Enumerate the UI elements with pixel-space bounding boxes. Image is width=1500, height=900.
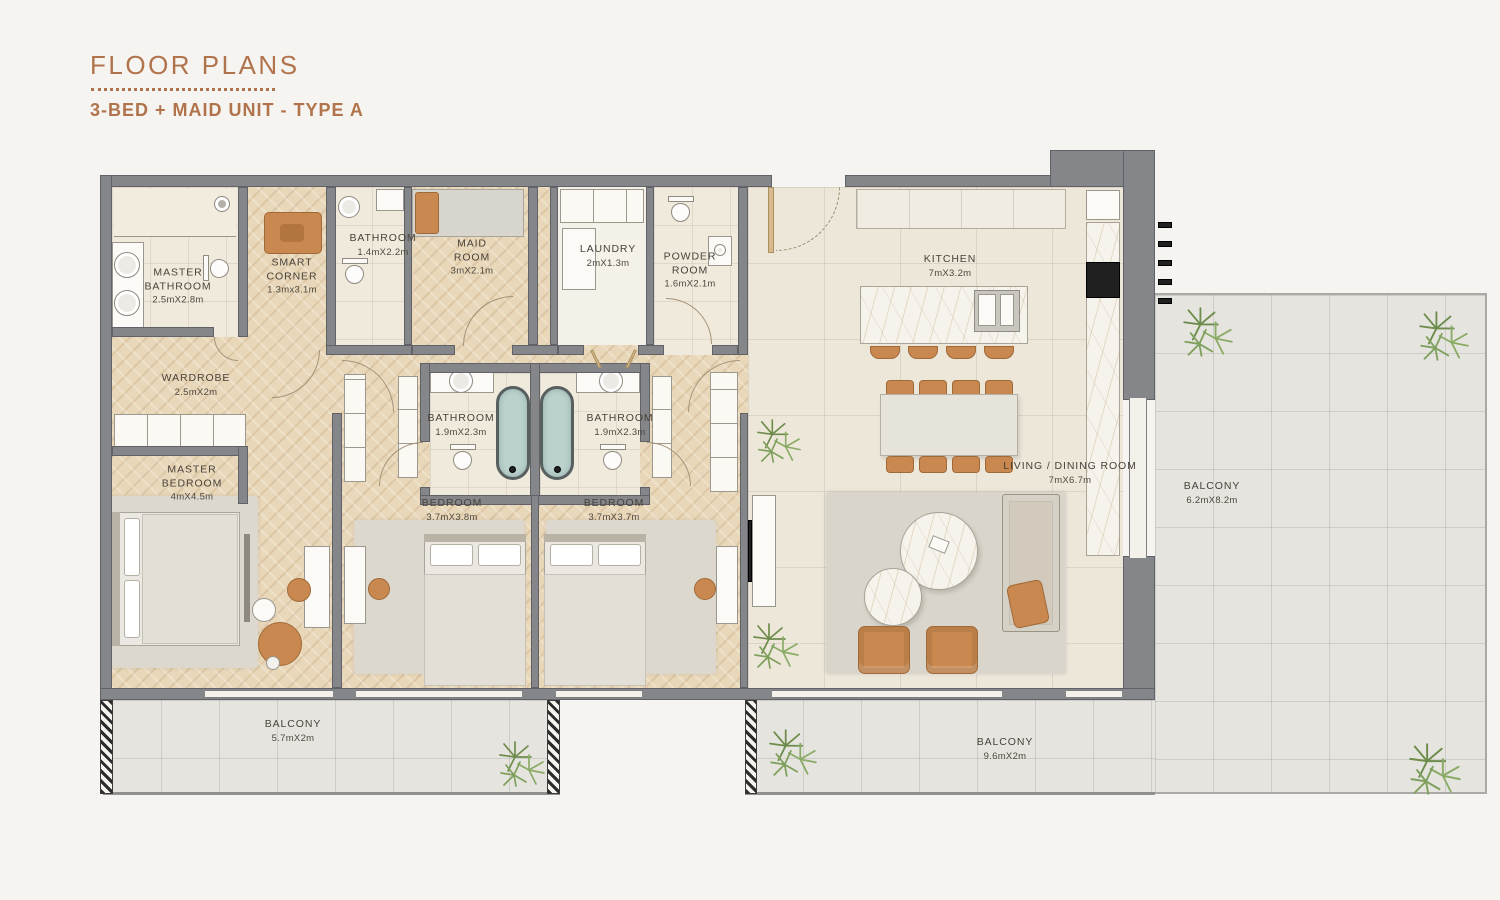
room-name: BATHROOM xyxy=(582,412,658,426)
bar-stool xyxy=(908,346,938,359)
bed-duvet xyxy=(424,574,526,686)
ac-vent xyxy=(1158,241,1172,247)
balcony-left-floor xyxy=(103,700,560,794)
bedroom-2-desk xyxy=(716,546,738,624)
room-dims: 1.4mX2.2m xyxy=(345,247,421,258)
balcony-end-hatch xyxy=(100,700,113,794)
room-dims: 5.7mX2m xyxy=(233,733,353,744)
wall xyxy=(412,345,455,355)
tub-faucet xyxy=(509,466,516,473)
wall xyxy=(112,327,214,337)
room-name: MASTER BEDROOM xyxy=(150,463,234,490)
pillow xyxy=(430,544,473,566)
pillow xyxy=(124,580,140,638)
bed-headboard xyxy=(544,534,646,542)
room-label-bedroom-1: BEDROOM 3.7mX3.8m xyxy=(397,497,507,523)
bed-bench xyxy=(244,534,250,622)
maid-bed-pillow xyxy=(415,192,439,234)
room-label-wardrobe: WARDROBE 2.5mX2m xyxy=(136,372,256,398)
window xyxy=(356,690,522,698)
bed-headboard xyxy=(424,534,526,542)
bedroom-1-desk xyxy=(344,546,366,624)
tv-console xyxy=(752,495,776,607)
ac-vent xyxy=(1158,279,1172,285)
tv xyxy=(748,520,752,582)
room-label-balcony-left: BALCONY 5.7mX2m xyxy=(233,718,353,744)
pillow xyxy=(124,518,140,576)
lounge-chair xyxy=(258,622,302,666)
sink-bowl xyxy=(1000,294,1014,326)
room-name: BALCONY xyxy=(1152,480,1272,494)
bar-stool xyxy=(946,346,976,359)
wall xyxy=(332,413,342,688)
room-dims: 1.9mX2.3m xyxy=(423,427,499,438)
room-label-powder-room: POWDER ROOM 1.6mX2.1m xyxy=(655,250,725,289)
dining-chair xyxy=(919,456,947,473)
room-dims: 3.7mX3.8m xyxy=(397,512,507,523)
dining-table xyxy=(880,394,1018,456)
window xyxy=(205,690,333,698)
shower-head-icon xyxy=(214,196,230,212)
wall xyxy=(238,187,248,337)
floor-plan: MASTER BATHROOM 2.5mX2.8m SMART CORNER 1… xyxy=(0,0,1500,900)
dining-chair xyxy=(886,456,914,473)
room-label-smart-corner: SMART CORNER 1.3mx3.1m xyxy=(257,256,327,295)
wall xyxy=(326,187,336,355)
master-bed-duvet xyxy=(142,514,238,644)
side-table xyxy=(252,598,276,622)
room-dims: 4mX4.5m xyxy=(150,492,234,503)
sink-icon xyxy=(338,196,360,218)
wall xyxy=(404,187,412,345)
pillow xyxy=(598,544,641,566)
room-dims: 3.7mX3.7m xyxy=(559,512,669,523)
wall xyxy=(112,446,246,456)
toilet-icon xyxy=(342,258,368,286)
tub-faucet xyxy=(554,466,561,473)
room-name: LIVING / DINING ROOM xyxy=(960,460,1180,474)
balcony-end-hatch xyxy=(745,700,757,794)
laundry-cabinets xyxy=(560,189,644,223)
room-label-balcony-right: BALCONY 6.2mX8.2m xyxy=(1152,480,1272,506)
window xyxy=(772,690,1002,698)
room-label-living-dining: LIVING / DINING ROOM 7mX6.7m xyxy=(960,460,1180,486)
fridge xyxy=(1086,190,1120,220)
plant-icon xyxy=(768,728,818,778)
pillow xyxy=(550,544,593,566)
room-dims: 7mX6.7m xyxy=(960,475,1180,486)
room-name: POWDER ROOM xyxy=(655,250,725,277)
ac-vent xyxy=(1158,222,1172,228)
room-name: BEDROOM xyxy=(397,497,507,511)
room-name: BALCONY xyxy=(233,718,353,732)
room-name: WARDROBE xyxy=(136,372,256,386)
plant-icon xyxy=(1182,306,1234,358)
wall xyxy=(740,413,748,688)
floor-plan-page: FLOOR PLANS 3-BED + MAID UNIT - TYPE A xyxy=(0,0,1500,900)
room-name: BEDROOM xyxy=(559,497,669,511)
entry-door-leaf xyxy=(768,187,774,253)
ac-vent xyxy=(1158,260,1172,266)
room-name: MASTER BATHROOM xyxy=(136,266,220,293)
kitchen-counter-top xyxy=(856,189,1066,229)
room-label-kitchen: KITCHEN 7mX3.2m xyxy=(890,253,1010,279)
wall xyxy=(738,187,748,355)
wall xyxy=(528,187,538,345)
desk-chair xyxy=(694,578,716,600)
room-dims: 1.3mx3.1m xyxy=(257,285,327,296)
room-name: LAUNDRY xyxy=(558,243,658,257)
desk-chair xyxy=(287,578,311,602)
plant-icon xyxy=(1418,310,1470,362)
room-name: SMART CORNER xyxy=(257,256,327,283)
wall xyxy=(530,363,540,505)
wall xyxy=(238,446,248,504)
plant-icon xyxy=(1408,742,1462,796)
window xyxy=(556,690,642,698)
wall xyxy=(845,175,1067,187)
wall xyxy=(550,187,558,345)
wall xyxy=(1123,556,1155,700)
bar-stool xyxy=(870,346,900,359)
room-label-laundry: LAUNDRY 2mX1.3m xyxy=(558,243,658,269)
pillow xyxy=(478,544,521,566)
wall xyxy=(558,345,584,355)
room-label-bathroom-1: BATHROOM 1.9mX2.3m xyxy=(423,412,499,438)
plant-icon xyxy=(756,418,802,464)
wall xyxy=(512,345,558,355)
plant-icon xyxy=(752,622,800,670)
coffee-table-small xyxy=(864,568,922,626)
master-bed-headboard xyxy=(112,512,120,646)
room-label-maid-room: MAID ROOM 3mX2.1m xyxy=(440,237,504,276)
room-name: MAID ROOM xyxy=(440,237,504,264)
wall xyxy=(712,345,738,355)
wall xyxy=(326,345,412,355)
room-dims: 1.9mX2.3m xyxy=(582,427,658,438)
wall xyxy=(531,495,539,688)
room-label-bathroom-2: BATHROOM 1.9mX2.3m xyxy=(582,412,658,438)
toilet-icon xyxy=(600,444,626,472)
bar-stool xyxy=(984,346,1014,359)
room-name: BATHROOM xyxy=(345,232,421,246)
armchair xyxy=(858,626,910,674)
room-dims: 1.6mX2.1m xyxy=(655,279,725,290)
room-label-maid-bathroom: BATHROOM 1.4mX2.2m xyxy=(345,232,421,258)
wardrobe-shelves xyxy=(114,414,246,448)
balcony-right-floor xyxy=(1155,293,1487,794)
room-label-balcony-middle: BALCONY 9.6mX2m xyxy=(945,736,1065,762)
balcony-slab-edge xyxy=(103,792,560,795)
room-dims: 2mX1.3m xyxy=(558,258,658,269)
ac-vent xyxy=(1158,298,1172,304)
room-name: BALCONY xyxy=(945,736,1065,750)
room-dims: 2.5mX2.8m xyxy=(136,295,220,306)
room-label-master-bathroom: MASTER BATHROOM 2.5mX2.8m xyxy=(136,266,220,305)
window xyxy=(1066,690,1122,698)
armchair xyxy=(926,626,978,674)
room-dims: 2.5mX2m xyxy=(136,387,256,398)
wall xyxy=(100,175,112,700)
room-name: BATHROOM xyxy=(423,412,499,426)
desk-chair xyxy=(368,578,390,600)
bed-duvet xyxy=(544,574,646,686)
plant-icon xyxy=(498,740,546,788)
pouf xyxy=(266,656,280,670)
room-dims: 3mX2.1m xyxy=(440,266,504,277)
sink-bowl xyxy=(978,294,996,326)
room-dims: 6.2mX8.2m xyxy=(1152,495,1272,506)
cooktop xyxy=(1086,262,1120,298)
balcony-slab-edge xyxy=(745,792,1155,795)
room-dims: 9.6mX2m xyxy=(945,751,1065,762)
room-label-master-bedroom: MASTER BEDROOM 4mX4.5m xyxy=(150,463,234,502)
toilet-icon xyxy=(668,196,694,224)
wall xyxy=(638,345,664,355)
room-name: KITCHEN xyxy=(890,253,1010,267)
wall xyxy=(100,175,772,187)
room-dims: 7mX3.2m xyxy=(890,268,1010,279)
room-label-bedroom-2: BEDROOM 3.7mX3.7m xyxy=(559,497,669,523)
maid-bath-counter xyxy=(376,189,404,211)
smart-corner-seat xyxy=(280,224,304,242)
balcony-end-hatch xyxy=(547,700,560,794)
toilet-icon xyxy=(450,444,476,472)
wall xyxy=(1123,150,1155,400)
